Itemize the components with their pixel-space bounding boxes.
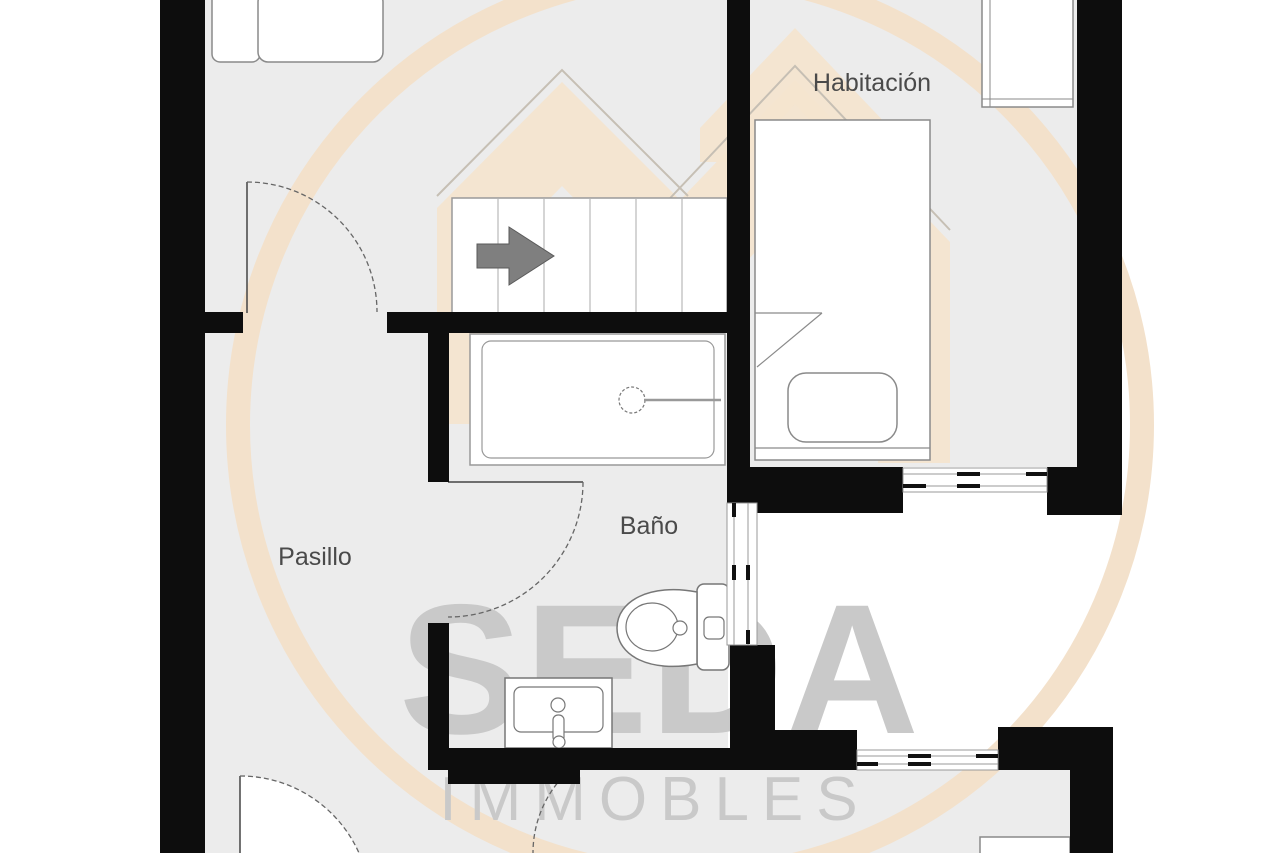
wall-mid-lower — [428, 623, 449, 763]
wall-bottomright-vertical — [1070, 770, 1113, 853]
bed-cushion — [788, 373, 897, 442]
label-bano: Baño — [620, 512, 678, 540]
bathtub-drain — [619, 387, 645, 413]
toilet-tank-knob — [704, 617, 724, 639]
sink-drain — [551, 698, 565, 712]
bench-seat-large — [258, 0, 383, 62]
toilet-seat — [626, 603, 678, 651]
bench-seat-small — [212, 0, 260, 62]
toilet-flush-button — [673, 621, 687, 635]
wall-window-right-chunk — [1047, 467, 1122, 515]
window-bottom — [857, 750, 998, 770]
wall-l-horizontal — [775, 730, 857, 770]
wall-bath-bottom — [428, 748, 775, 770]
label-habitacion: Habitación — [813, 69, 931, 97]
sink-faucet-base — [553, 736, 565, 748]
wardrobe — [982, 0, 1073, 107]
wall-right-outer — [1077, 0, 1122, 515]
wall-bath-bottom-step — [448, 770, 580, 784]
label-pasillo: Pasillo — [278, 543, 352, 571]
wall-bottomright-horizontal — [998, 727, 1113, 770]
stairs — [452, 198, 727, 313]
sink — [505, 678, 612, 748]
single-bed — [755, 120, 930, 460]
wall-l-vertical — [730, 645, 775, 770]
window-habitacion — [903, 468, 1047, 492]
sliding-door-track — [727, 503, 757, 645]
bathtub — [470, 334, 725, 465]
wall-mid-upper — [428, 313, 449, 482]
wall-left-outer — [160, 0, 205, 853]
wardrobe-body — [982, 0, 1073, 107]
floorplan-drawing: SEDA IMMOBLES — [0, 0, 1280, 853]
wall-landing-left — [170, 312, 243, 333]
floorplan-page: SEDA IMMOBLES — [0, 0, 1280, 853]
wall-habitacion-left — [727, 0, 750, 513]
cabinet — [980, 837, 1070, 853]
